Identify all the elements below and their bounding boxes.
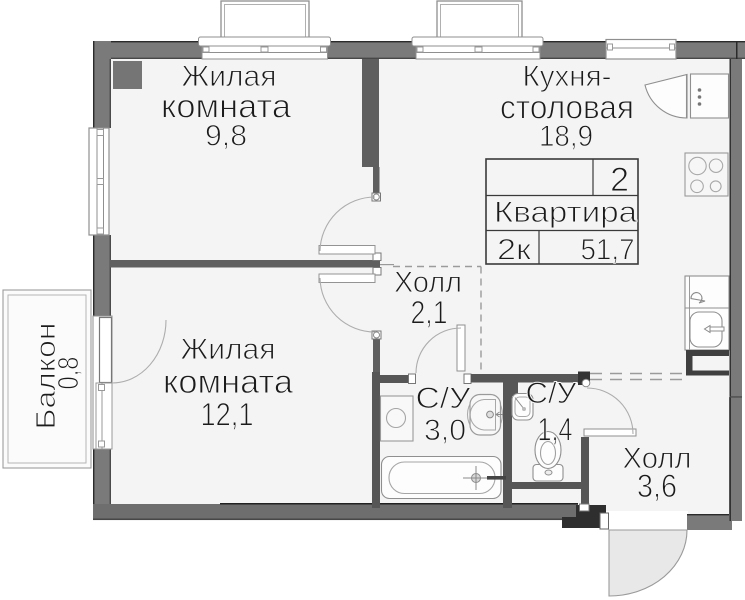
svg-text:2,1: 2,1	[411, 295, 448, 331]
svg-text:Квартира: Квартира	[494, 196, 637, 229]
svg-text:12,1: 12,1	[201, 397, 254, 433]
svg-text:3,6: 3,6	[637, 468, 677, 504]
svg-text:Жилая: Жилая	[181, 333, 276, 366]
svg-text:2к: 2к	[497, 234, 532, 267]
svg-text:комната: комната	[163, 363, 294, 400]
svg-text:С/У: С/У	[526, 377, 578, 410]
svg-text:1,4: 1,4	[538, 412, 573, 448]
svg-text:18,9: 18,9	[539, 120, 593, 153]
svg-text:2: 2	[610, 161, 629, 199]
svg-text:С/У: С/У	[416, 382, 472, 415]
svg-text:9,8: 9,8	[205, 120, 247, 153]
svg-text:3,0: 3,0	[424, 414, 466, 447]
svg-text:0,8: 0,8	[53, 357, 85, 390]
svg-text:51,7: 51,7	[581, 234, 635, 267]
